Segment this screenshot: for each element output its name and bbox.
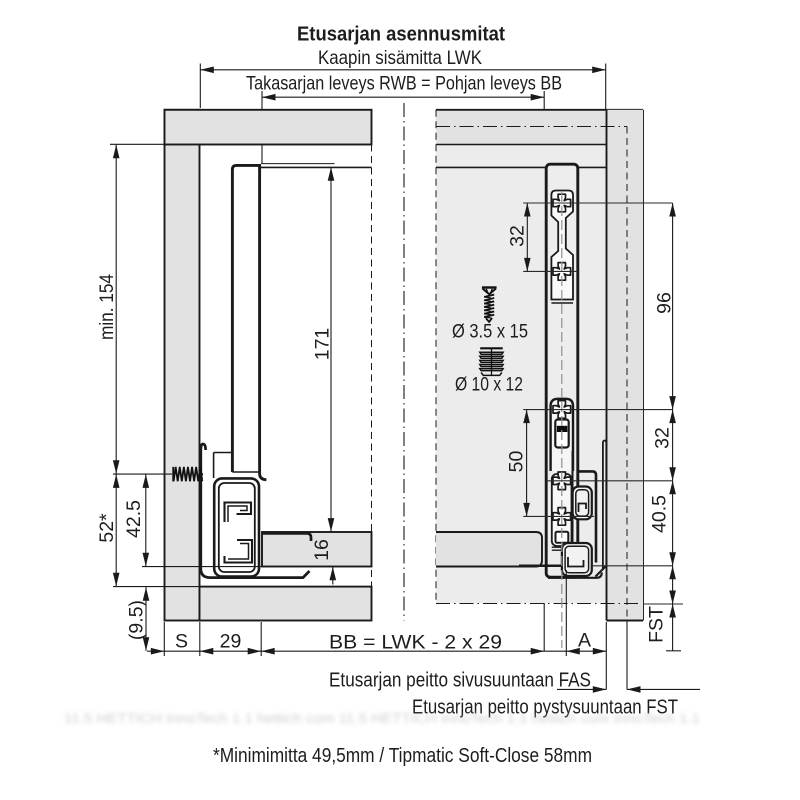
- svg-text:FST: FST: [646, 606, 668, 643]
- svg-text:16: 16: [311, 539, 333, 561]
- svg-text:42.5: 42.5: [123, 500, 145, 538]
- svg-text:Etusarjan asennusmitat: Etusarjan asennusmitat: [297, 24, 505, 46]
- svg-text:32: 32: [507, 225, 529, 247]
- svg-text:32: 32: [652, 427, 674, 449]
- svg-text:A: A: [578, 630, 591, 652]
- svg-text:min. 154: min. 154: [96, 274, 118, 340]
- svg-text:50: 50: [506, 451, 528, 473]
- svg-text:96: 96: [654, 292, 676, 314]
- svg-text:52*: 52*: [96, 513, 118, 543]
- svg-text:Ø 10 x 12: Ø 10 x 12: [455, 374, 523, 396]
- svg-text:11.5 HETTICH InnoTech 1.1 hett: 11.5 HETTICH InnoTech 1.1 hettich com 11…: [64, 711, 700, 726]
- svg-text:Kaapin sisämitta LWK: Kaapin sisämitta LWK: [318, 47, 482, 69]
- svg-text:BB = LWK - 2 x 29: BB = LWK - 2 x 29: [329, 632, 502, 654]
- svg-text:Takasarjan leveys RWB = Pohjan: Takasarjan leveys RWB = Pohjan leveys BB: [246, 73, 562, 95]
- svg-text:(9.5): (9.5): [126, 600, 148, 640]
- svg-text:Etusarjan peitto sivusuuntaan: Etusarjan peitto sivusuuntaan FAS: [329, 670, 591, 692]
- svg-text:S: S: [175, 631, 188, 653]
- svg-text:Ø 3.5 x 15: Ø 3.5 x 15: [452, 321, 528, 343]
- svg-text:171: 171: [312, 328, 334, 361]
- svg-text:29: 29: [220, 631, 242, 653]
- svg-text:40.5: 40.5: [649, 495, 671, 533]
- svg-text:*Minimimitta 49,5mm / Tipmatic: *Minimimitta 49,5mm / Tipmatic Soft-Clos…: [213, 745, 592, 767]
